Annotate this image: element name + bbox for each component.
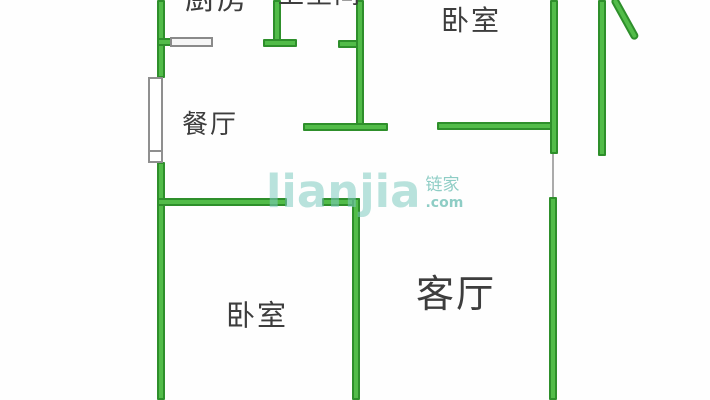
- room-label-bedroom-top: 卧室: [441, 7, 501, 35]
- room-label-living: 客厅: [416, 275, 496, 313]
- room-label-dining: 餐厅: [182, 112, 238, 138]
- floorplan-canvas: 厨房卫生间卧室餐厅卧室客厅 lianjia 链家 .com: [0, 0, 710, 400]
- room-label-kitchen: 厨房: [185, 0, 249, 15]
- labels-layer: 厨房卫生间卧室餐厅卧室客厅: [0, 0, 710, 400]
- room-label-bathroom: 卫生间: [278, 0, 362, 8]
- room-label-bedroom-bottom: 卧室: [226, 302, 288, 331]
